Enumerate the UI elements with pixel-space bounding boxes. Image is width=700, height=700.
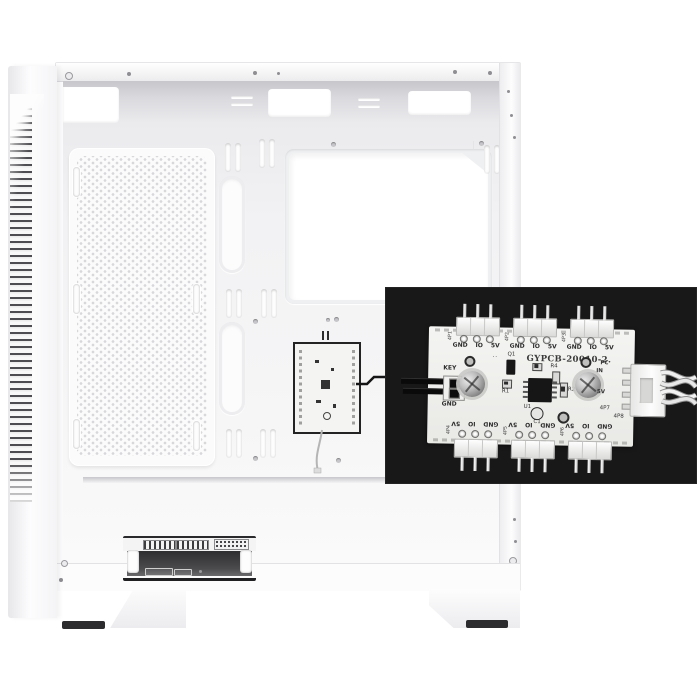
q1-label: Q1	[508, 352, 516, 358]
pin-labels-bottom-3: GND IO 5V	[565, 422, 612, 430]
standoff	[253, 456, 258, 461]
pin-labels-top-2: GND IO 5V	[510, 343, 557, 351]
screw-hole	[59, 578, 63, 582]
screw-hole	[61, 560, 68, 567]
screw-hole	[513, 518, 516, 521]
io-label: IO	[533, 343, 540, 350]
gnd-label: GND	[540, 421, 555, 428]
5v-label: 5V	[605, 344, 614, 351]
header-ref: 4P1	[448, 331, 453, 340]
5v-label: 5V	[508, 421, 517, 428]
case-foot	[466, 620, 508, 628]
header-ref: 4P4	[446, 425, 451, 434]
hub-edge-pads	[299, 350, 302, 426]
small-component	[534, 364, 538, 368]
fan-hub-pcb: GND IO 5V GND IO 5V GND IO 5V 4P1 4P2 4P…	[427, 326, 635, 447]
bay-edge	[123, 578, 256, 581]
screw-hole	[253, 71, 257, 75]
pin-labels-bottom-1: GND IO 5V	[451, 420, 498, 428]
cable-grommet	[219, 176, 245, 273]
sata-data-connector	[145, 568, 173, 576]
standoff	[336, 458, 341, 463]
top-vent-slots	[358, 98, 380, 112]
screw-hole	[65, 72, 73, 80]
fan-hub-pcb-mounted	[293, 342, 361, 434]
r4-label: R4	[550, 363, 557, 369]
bay-detail	[199, 570, 202, 573]
drive-clip	[127, 550, 139, 573]
pin-labels-top-3: GND IO 5V	[567, 344, 614, 352]
fan-mount-slot	[193, 284, 200, 314]
cable-tie-slots	[484, 145, 500, 173]
screw-hole	[513, 136, 516, 139]
io-label: IO	[590, 344, 597, 351]
header-ref: 4P3	[562, 333, 567, 342]
bay-top-strip	[123, 538, 256, 551]
fan-header-bottom-2	[511, 440, 555, 460]
top-vent-slots	[231, 96, 253, 110]
fan-header-top-2	[513, 318, 557, 338]
r1-label: R1	[502, 388, 509, 394]
solder-pads	[515, 431, 549, 440]
header-ref: 4P6	[560, 427, 565, 436]
bay-cavity	[127, 551, 252, 576]
pin-labels-top-1: GND IO 5V	[453, 342, 500, 350]
product-photo: GND IO 5V GND IO 5V GND IO 5V 4P1 4P2 4P…	[0, 0, 700, 700]
io-label: IO	[468, 420, 475, 427]
via-pad	[464, 356, 475, 367]
screw-hole	[127, 72, 131, 76]
5v-label: 5V	[548, 343, 557, 350]
mesh-perforation	[77, 156, 207, 456]
top-cable-cutout	[268, 89, 331, 117]
cable-tie-slots	[226, 289, 242, 317]
in-label: IN	[596, 368, 603, 374]
header-ref: 4P2	[505, 332, 510, 341]
front-panel	[8, 66, 57, 618]
cable-tie-slots	[260, 429, 276, 457]
screw-hole	[488, 71, 492, 75]
case-foot	[62, 621, 105, 629]
io-label: IO	[525, 421, 532, 428]
cpu-cutout-frame	[285, 149, 492, 304]
pcb-inset-panel: GND IO 5V GND IO 5V GND IO 5V 4P1 4P2 4P…	[385, 287, 697, 484]
fan-header-top-1	[456, 317, 500, 337]
cable-tie-slots	[259, 139, 275, 167]
bay-vent	[143, 540, 176, 550]
gnd-label: GND	[483, 420, 498, 427]
hub-pin	[322, 331, 324, 340]
top-cable-cutout	[408, 91, 471, 115]
key-label: KEY	[443, 365, 456, 371]
fan-header-bottom-1	[454, 439, 498, 459]
screw-hole	[277, 72, 280, 75]
pin-labels-bottom-2: GND IO 5V	[508, 421, 555, 429]
hub-pin	[327, 331, 329, 340]
cable-tie-slots	[261, 289, 277, 317]
fan-mount-slot	[73, 284, 80, 314]
hub-part	[331, 368, 334, 371]
solder-pads	[572, 432, 606, 441]
r2-body	[561, 387, 565, 392]
screw-boss	[326, 318, 330, 322]
q1-transistor	[506, 360, 515, 375]
5v-out-label: 5V	[597, 389, 605, 395]
via-pad	[580, 357, 591, 368]
io-label: IO	[476, 342, 483, 349]
hub-part	[315, 360, 319, 363]
jumper-prong	[403, 388, 443, 395]
io-label: IO	[582, 422, 589, 429]
hub-capacitor	[323, 412, 331, 420]
u1-label: U1	[524, 404, 532, 410]
screw-hole	[514, 540, 517, 543]
r1-body	[504, 382, 508, 385]
5v-label: 5V	[491, 342, 500, 349]
case-top-rail	[56, 63, 520, 82]
cable-tie-slots	[225, 143, 241, 171]
fan-mount-slot	[73, 419, 80, 449]
silkscreen-dots: ··	[492, 354, 498, 360]
r2-label: R2	[568, 387, 575, 393]
pc-label: PC	[600, 360, 608, 366]
fan-mount-slot	[73, 167, 80, 197]
gnd-label: GND	[597, 422, 612, 429]
u1-ic	[528, 378, 552, 402]
screw-hole	[453, 70, 457, 74]
drive-clip	[240, 550, 252, 573]
screw-hole	[507, 90, 510, 93]
mounting-screw	[459, 371, 485, 397]
top-cable-cutout	[63, 87, 119, 123]
key-gnd-label: GND	[442, 401, 457, 407]
header-ref: 4P5	[503, 426, 508, 435]
hub-ic	[321, 380, 330, 389]
c1-label: C1	[533, 419, 540, 425]
solder-pads	[458, 430, 492, 439]
4p7-label: 4P7	[600, 405, 610, 411]
fan-header-top-3	[570, 319, 614, 339]
jumper-prong	[401, 378, 443, 385]
standoff	[331, 142, 336, 147]
drive-bay	[123, 536, 256, 581]
gnd-label: GND	[510, 343, 525, 350]
standoff	[334, 317, 339, 322]
4p8-label: 4P8	[613, 413, 623, 419]
gnd-label: GND	[567, 344, 582, 351]
fan-mount-slot	[193, 421, 200, 451]
cable-grommet	[219, 322, 245, 415]
key-pin	[449, 389, 460, 399]
front-leg	[107, 586, 186, 628]
sata-power-connector	[174, 569, 192, 576]
cpu-cutout	[289, 153, 488, 300]
standoff	[253, 319, 258, 324]
hub-part	[316, 400, 321, 403]
screw-hole	[510, 114, 513, 117]
gnd-label: GND	[453, 342, 468, 349]
hub-part	[333, 404, 336, 408]
standoff	[479, 141, 484, 146]
hub-edge-pads	[352, 350, 355, 426]
bay-vent	[176, 540, 209, 550]
5v-label: 5V	[451, 420, 460, 427]
cable-tie-slots	[226, 429, 242, 457]
sata-power-output-connector	[629, 364, 666, 418]
fan-header-bottom-3	[568, 441, 612, 461]
front-vent-highlight	[10, 94, 44, 158]
bay-vent	[214, 539, 249, 550]
